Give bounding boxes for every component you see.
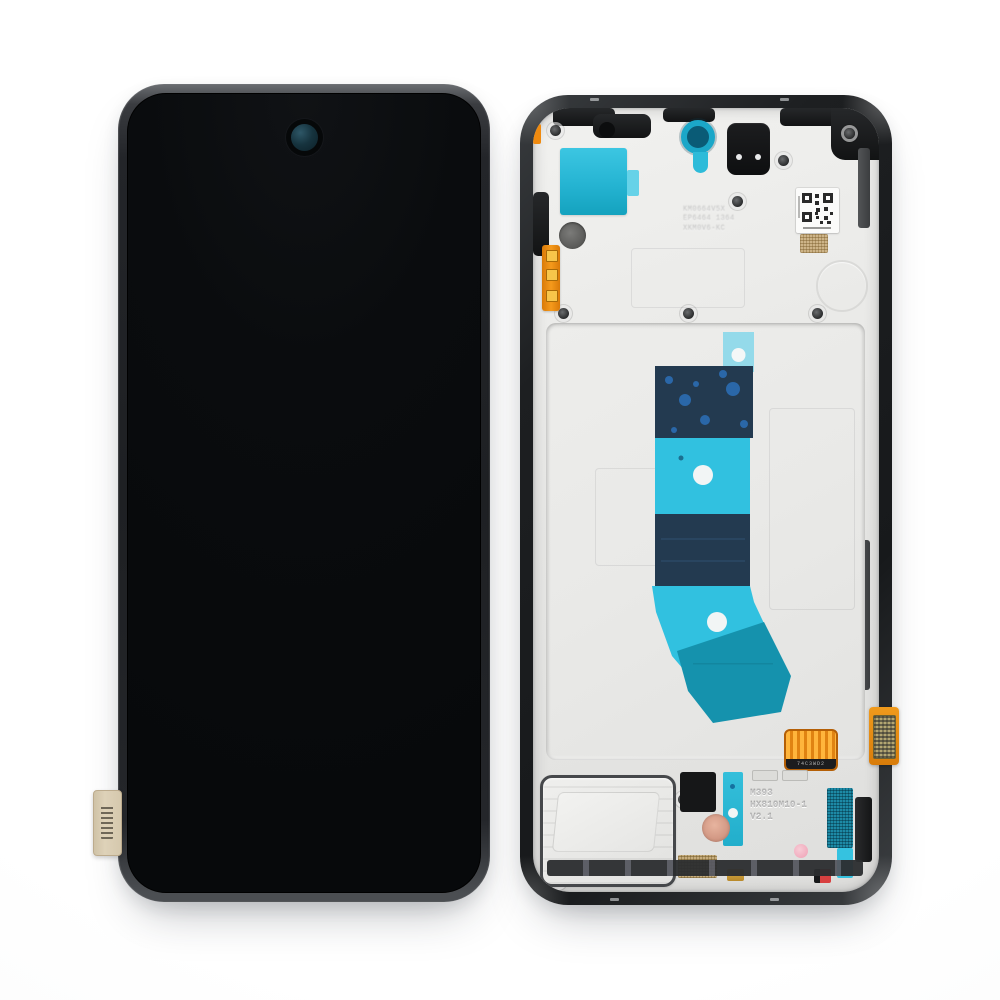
product-photo: KM0664V5X EP6464 1364 XKM0V6-KC: [0, 0, 1000, 1000]
antenna-notch: [770, 898, 779, 901]
side-label-sticker: [93, 790, 122, 856]
main-flex-cable: [869, 707, 899, 765]
inner-silver-panel: KM0664V5X EP6464 1364 XKM0V6-KC: [533, 108, 879, 892]
teal-mesh-pad: [827, 788, 853, 848]
strip-dot: [730, 784, 735, 789]
antenna-notch: [780, 98, 789, 101]
stamped-marking-bottom: M393 HX810M10-1 V2.1: [750, 787, 812, 823]
antenna-notch: [590, 98, 599, 101]
bottom-antenna-rail: [547, 860, 863, 876]
stamp-bottom-line2: HX810M10-1: [750, 799, 812, 811]
connector-label: 74C3WD2: [786, 759, 836, 769]
pink-adhesive-dot: [794, 844, 808, 858]
rear-frame-assembly: KM0664V5X EP6464 1364 XKM0V6-KC: [520, 95, 892, 905]
board-connector-housing: [855, 797, 872, 862]
solder-pad: [782, 770, 808, 781]
punch-hole-camera: [291, 124, 318, 151]
stamp-bottom-line3: V2.1: [750, 811, 812, 823]
front-screen: [127, 93, 481, 893]
strip-hole: [728, 808, 738, 818]
copper-coil: [702, 814, 730, 842]
stamp-bottom-line1: M393: [750, 787, 812, 799]
antenna-notch: [610, 898, 619, 901]
black-component: [680, 772, 716, 812]
side-label-barcode: [101, 805, 113, 839]
speaker-plate: [552, 792, 660, 852]
board-to-board-connector: [873, 715, 896, 759]
solder-pad: [752, 770, 778, 781]
display-flex-connector: 74C3WD2: [784, 729, 838, 771]
front-display-assembly: [118, 84, 490, 902]
